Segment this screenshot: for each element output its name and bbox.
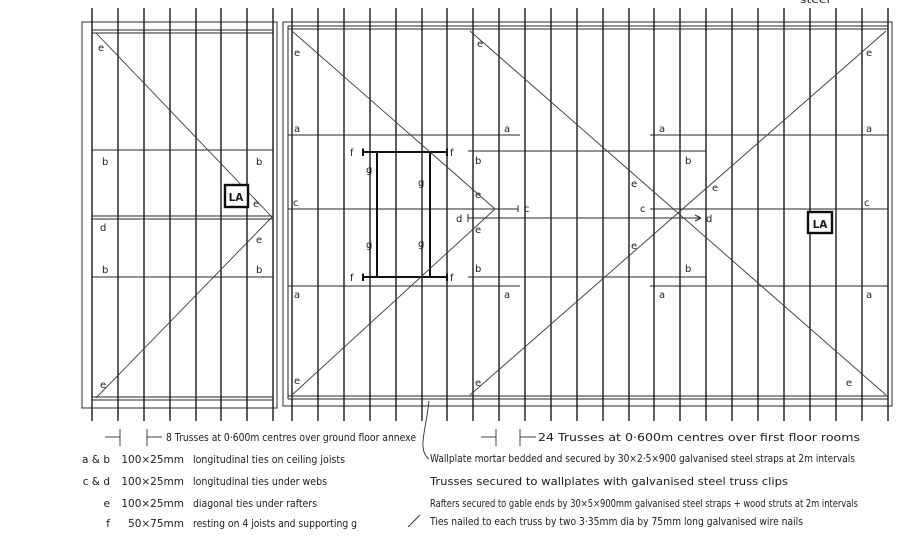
note-rafters: Rafters secured to gable ends by 30×5×90… (430, 498, 858, 510)
legend-size: 100×25mm (121, 476, 184, 488)
tie-label-a: a (504, 290, 510, 301)
tie-label-e: e (253, 199, 259, 210)
right-panel-truss-lines (292, 8, 888, 421)
tie-label-a: a (866, 290, 872, 301)
note-truss-clips: Trusses secured to wallplates with galva… (429, 476, 788, 488)
tie-label-a: a (659, 124, 665, 135)
tie-label-e: e (98, 43, 104, 54)
legend-desc: longitudinal ties under webs (193, 476, 327, 488)
legend-size: 100×25mm (121, 454, 184, 466)
tie-label-g: g (366, 240, 372, 251)
tie-label-e: e (475, 190, 481, 201)
member-legend: a & b 100×25mm longitudinal ties on ceil… (82, 454, 357, 530)
left-dimension-marks (105, 429, 162, 446)
tie-label-b: b (475, 264, 481, 275)
left-panel-outer-border (82, 22, 277, 408)
left-panel-truss-lines (92, 8, 273, 421)
right-panel-outer-border (283, 22, 892, 406)
tie-label-a: a (866, 124, 872, 135)
truss-bracing-plan-page: steel LA (0, 0, 900, 547)
right-dimension-marks (481, 429, 536, 446)
tie-label-f: f (350, 148, 354, 159)
tie-label-a: a (294, 124, 300, 135)
tie-label-g: g (418, 239, 424, 250)
tie-label-f: f (450, 273, 454, 284)
tie-label-c: c (524, 204, 530, 215)
tie-label-e: e (631, 241, 637, 252)
construction-notes: Wallplate mortar bedded and secured by 3… (429, 453, 858, 528)
ties-note-leader-tick (408, 515, 420, 527)
tie-label-b: b (102, 157, 108, 168)
truss-plan-drawing: steel LA (0, 0, 900, 547)
tie-label-e: e (100, 380, 106, 391)
tie-label-e: e (256, 235, 262, 246)
tie-label-e: e (477, 39, 483, 50)
tie-label-f: f (450, 148, 454, 159)
tie-label-d: d (456, 214, 462, 225)
tie-label-c: c (864, 198, 870, 209)
tie-label-e: e (294, 48, 300, 59)
tie-label-f: f (350, 273, 354, 284)
left-panel-longitudinal-ties (92, 150, 273, 277)
loft-access-label-right: LA (813, 219, 829, 231)
tie-label-a: a (659, 290, 665, 301)
tie-label-a: a (294, 290, 300, 301)
left-panel-annexe: LA (82, 8, 277, 421)
tie-label-g: g (366, 165, 372, 176)
note-ties-nailed: Ties nailed to each truss by two 3·35mm … (429, 516, 803, 528)
right-truss-caption: 24 Trusses at 0·600m centres over first … (538, 432, 860, 444)
right-panel-first-floor: LA (283, 8, 892, 421)
trimmer-f-and-g-members (363, 149, 447, 282)
tie-label-b: b (475, 156, 481, 167)
legend-desc: resting on 4 joists and supporting g (193, 518, 357, 530)
tie-label-e: e (846, 378, 852, 389)
legend-desc: longitudinal ties on ceiling joists (193, 454, 345, 466)
tie-label-e: e (475, 225, 481, 236)
tie-label-d: d (100, 223, 106, 234)
legend-key: e (104, 498, 110, 510)
tie-label-b: b (685, 264, 691, 275)
tie-label-e: e (475, 378, 481, 389)
legend-desc: diagonal ties under rafters (193, 498, 317, 510)
legend-key: f (106, 518, 110, 530)
note-wallplate: Wallplate mortar bedded and secured by 3… (430, 453, 855, 465)
tie-label-g: g (418, 178, 424, 189)
tie-label-a: a (504, 124, 510, 135)
letter-labels: ebbdbbeeeeeaaaaffggbbccccddeeeeeggffbbaa… (98, 39, 872, 391)
top-cutoff-text: steel (800, 0, 830, 6)
tie-label-c: c (640, 204, 646, 215)
tie-label-e: e (866, 48, 872, 59)
tie-label-b: b (685, 156, 691, 167)
legend-size: 100×25mm (121, 498, 184, 510)
legend-size: 50×75mm (128, 518, 184, 530)
legend-key: c & d (83, 476, 110, 488)
tie-label-c: c (293, 198, 299, 209)
right-panel-diagonal-braces (292, 31, 886, 395)
tie-label-e: e (631, 179, 637, 190)
legend-key: a & b (82, 454, 110, 466)
tie-label-e: e (294, 376, 300, 387)
wallplate-leader-line (423, 401, 429, 459)
left-truss-caption: 8 Trusses at 0·600m centres over ground … (166, 432, 416, 444)
tie-label-b: b (256, 265, 262, 276)
tie-label-b: b (256, 157, 262, 168)
left-panel-wallplates (92, 30, 277, 400)
tie-label-d: d (706, 214, 712, 225)
tie-label-e: e (712, 183, 718, 194)
tie-label-b: b (102, 265, 108, 276)
loft-access-label-left: LA (229, 192, 245, 204)
